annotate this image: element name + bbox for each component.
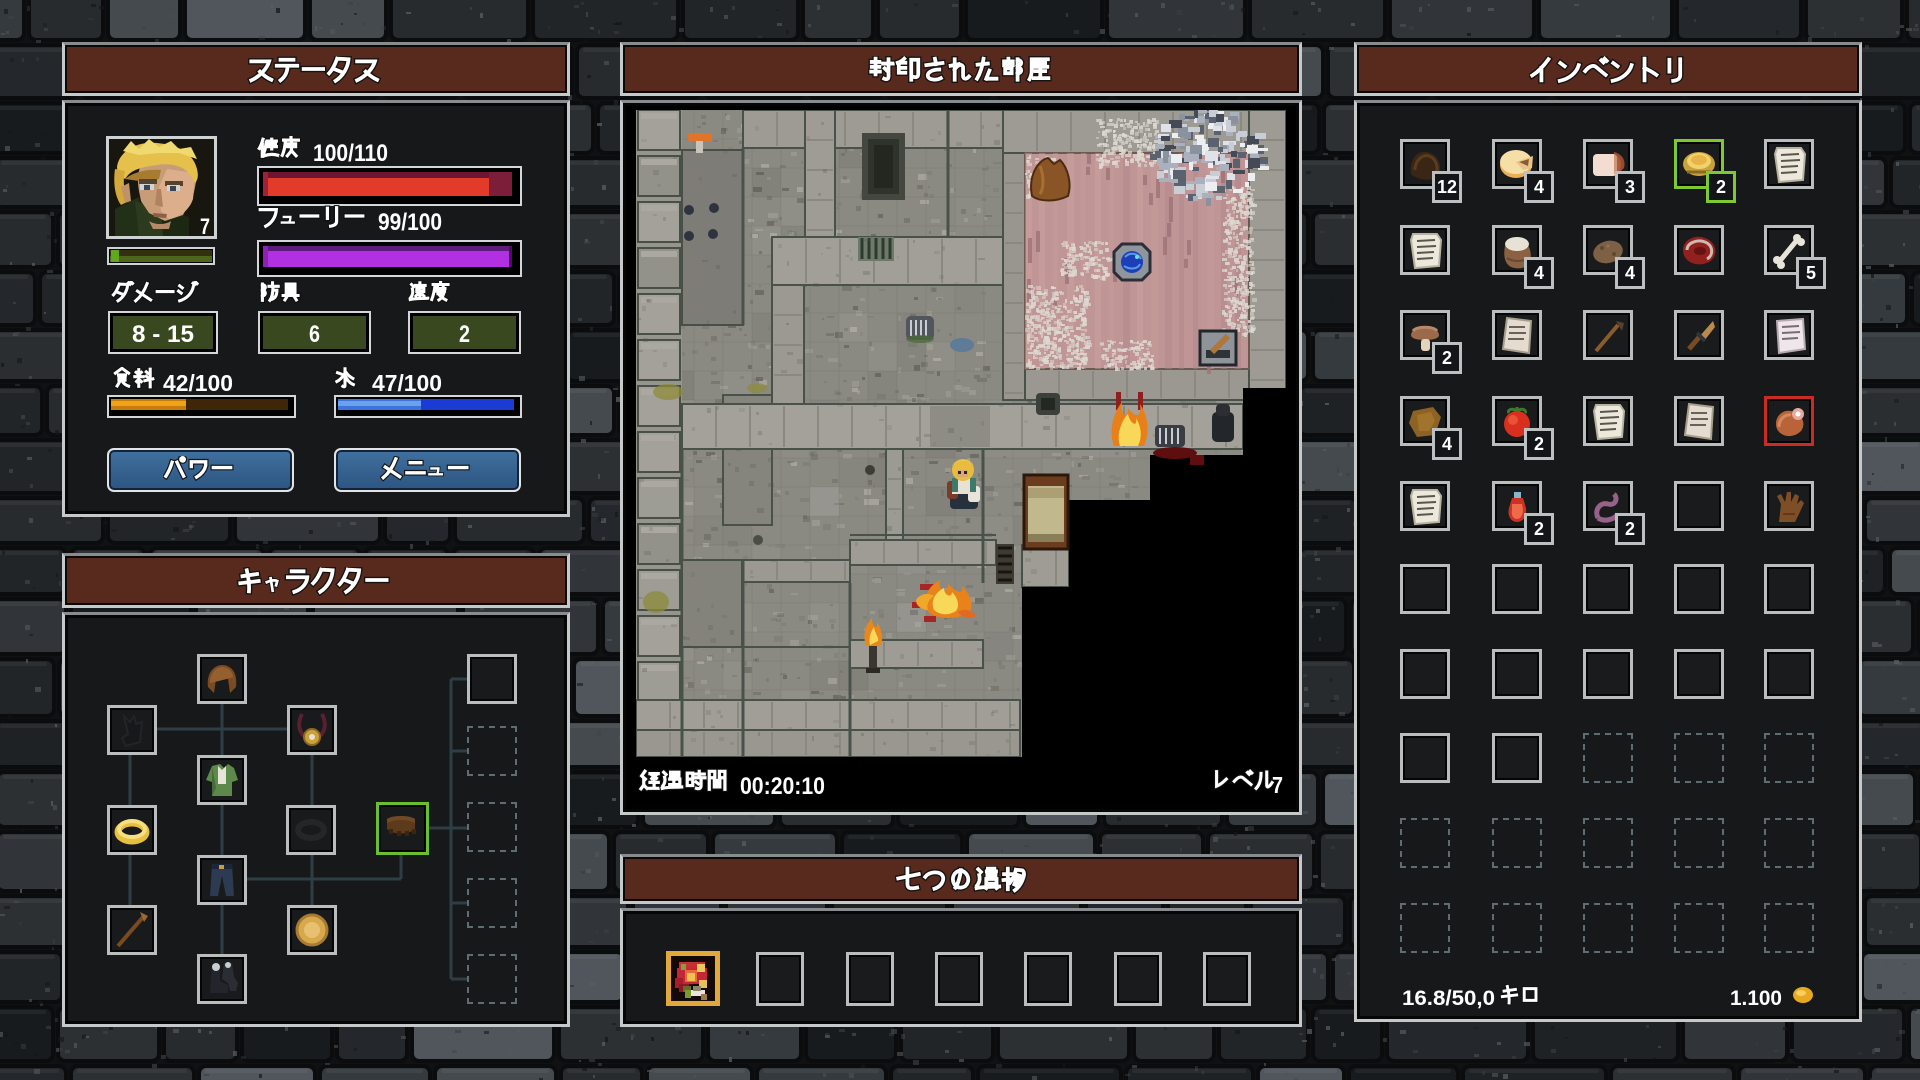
svg-text:2: 2: [459, 321, 470, 348]
svg-text:8 - 15: 8 - 15: [132, 321, 194, 348]
svg-text:5: 5: [1806, 263, 1816, 283]
svg-text:2: 2: [1716, 177, 1726, 197]
svg-text:7: 7: [1272, 772, 1283, 798]
svg-text:2: 2: [1442, 348, 1452, 368]
svg-text:4: 4: [1625, 263, 1635, 283]
svg-text:3: 3: [1625, 177, 1635, 197]
svg-text:100/110: 100/110: [313, 140, 388, 167]
svg-text:42/100: 42/100: [163, 370, 233, 396]
svg-text:99/100: 99/100: [378, 209, 442, 236]
svg-text:7: 7: [200, 214, 210, 239]
svg-text:2: 2: [1534, 434, 1544, 454]
svg-text:6: 6: [309, 321, 320, 348]
svg-text:2: 2: [1534, 519, 1544, 539]
svg-text:1.100: 1.100: [1730, 987, 1782, 1010]
svg-text:4: 4: [1442, 434, 1452, 454]
svg-text:2: 2: [1625, 519, 1635, 539]
svg-text:16.8/50,0: 16.8/50,0: [1402, 987, 1495, 1010]
svg-text:4: 4: [1534, 263, 1544, 283]
svg-text:12: 12: [1437, 177, 1457, 197]
svg-text:00:20:10: 00:20:10: [740, 773, 825, 800]
svg-text:47/100: 47/100: [372, 370, 442, 396]
svg-text:4: 4: [1534, 177, 1544, 197]
